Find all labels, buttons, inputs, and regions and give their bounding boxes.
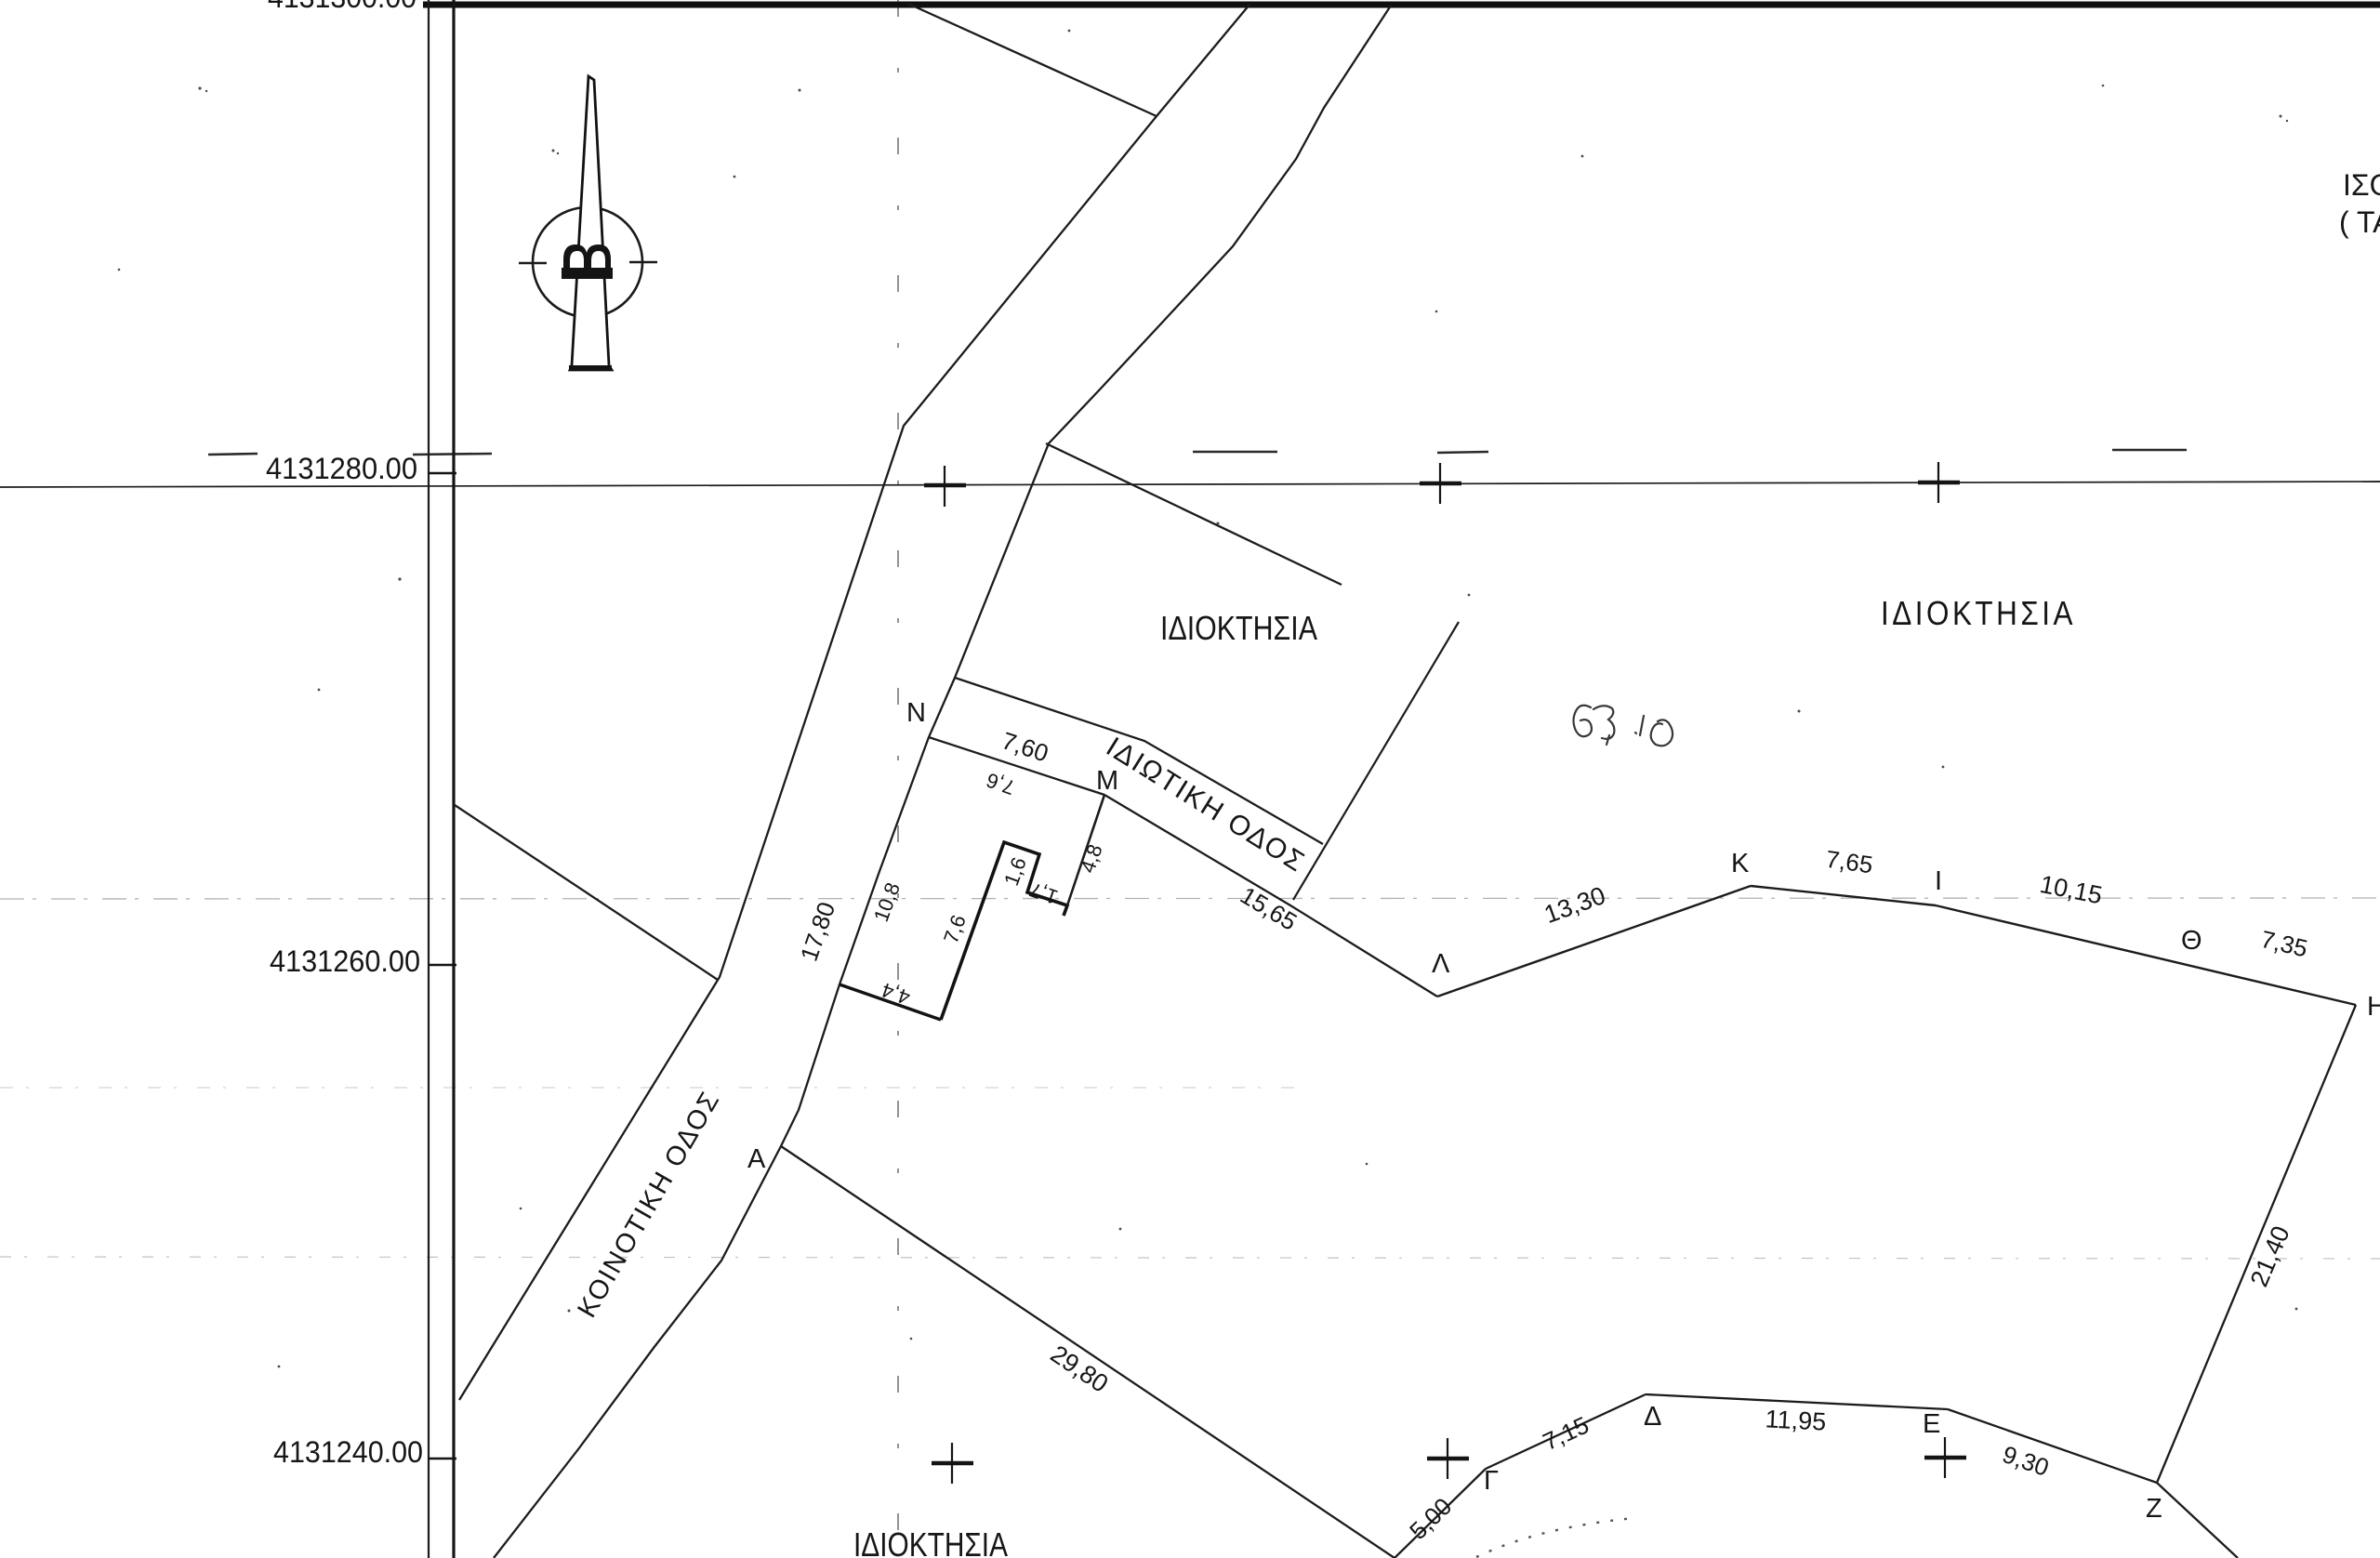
svg-text:4131300.00: 4131300.00 <box>268 0 416 14</box>
svg-text:I: I <box>1935 866 1942 896</box>
svg-text:E: E <box>1923 1409 1940 1439</box>
svg-text:Δ: Δ <box>1644 1402 1661 1432</box>
svg-text:M: M <box>1096 766 1118 796</box>
svg-text:Γ: Γ <box>1484 1466 1499 1496</box>
svg-text:4131280.00: 4131280.00 <box>266 452 417 485</box>
svg-text:11,95: 11,95 <box>1765 1405 1827 1435</box>
svg-text:H: H <box>2367 992 2380 1022</box>
svg-text:Λ: Λ <box>1432 949 1450 979</box>
svg-text:ΙΔΙΟΚΤΗΣΙΑ: ΙΔΙΟΚΤΗΣΙΑ <box>853 1525 1008 1558</box>
svg-text:Θ: Θ <box>2181 926 2202 956</box>
svg-text:N: N <box>906 698 926 728</box>
svg-text:A: A <box>747 1144 766 1174</box>
svg-text:ΙΣΟ: ΙΣΟ <box>2343 168 2380 202</box>
svg-text:K: K <box>1731 849 1750 878</box>
svg-text:ΙΔΙΟΚΤΗΣΙΑ: ΙΔΙΟΚΤΗΣΙΑ <box>1160 609 1317 647</box>
svg-text:ΙΔΙΟΚΤΗΣΙΑ: ΙΔΙΟΚΤΗΣΙΑ <box>1881 594 2076 632</box>
svg-text:( ΤΑ: ( ΤΑ <box>2339 205 2380 239</box>
svg-text:4131240.00: 4131240.00 <box>273 1435 423 1469</box>
svg-text:4131260.00: 4131260.00 <box>270 944 420 978</box>
svg-text:Z: Z <box>2146 1494 2162 1524</box>
